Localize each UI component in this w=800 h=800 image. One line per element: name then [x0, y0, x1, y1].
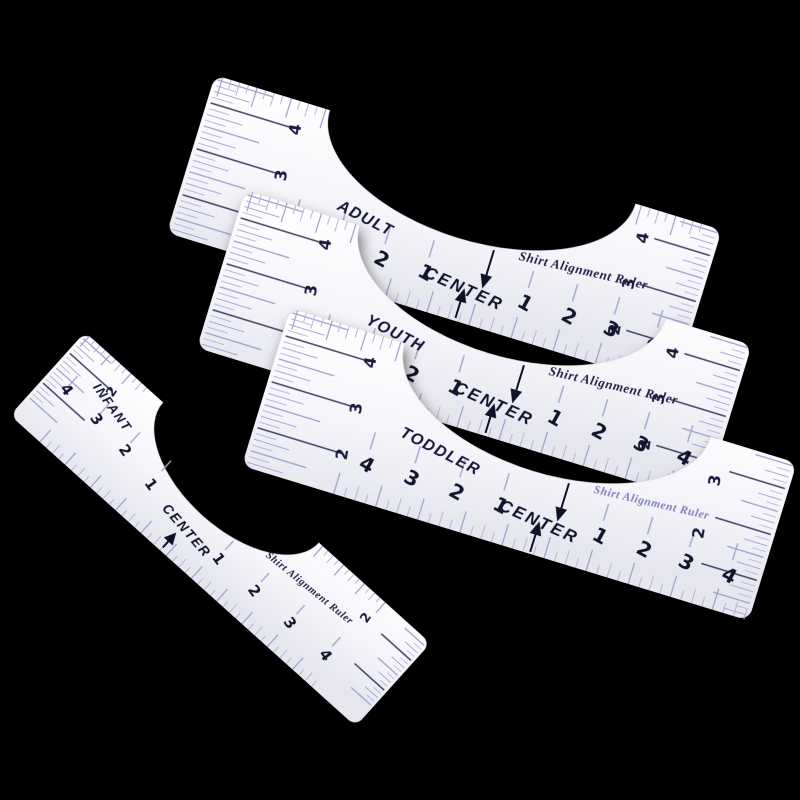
product-photo: 4 3 2 4 3 2 ADULT Shirt Alignment Ruler … [0, 0, 800, 800]
